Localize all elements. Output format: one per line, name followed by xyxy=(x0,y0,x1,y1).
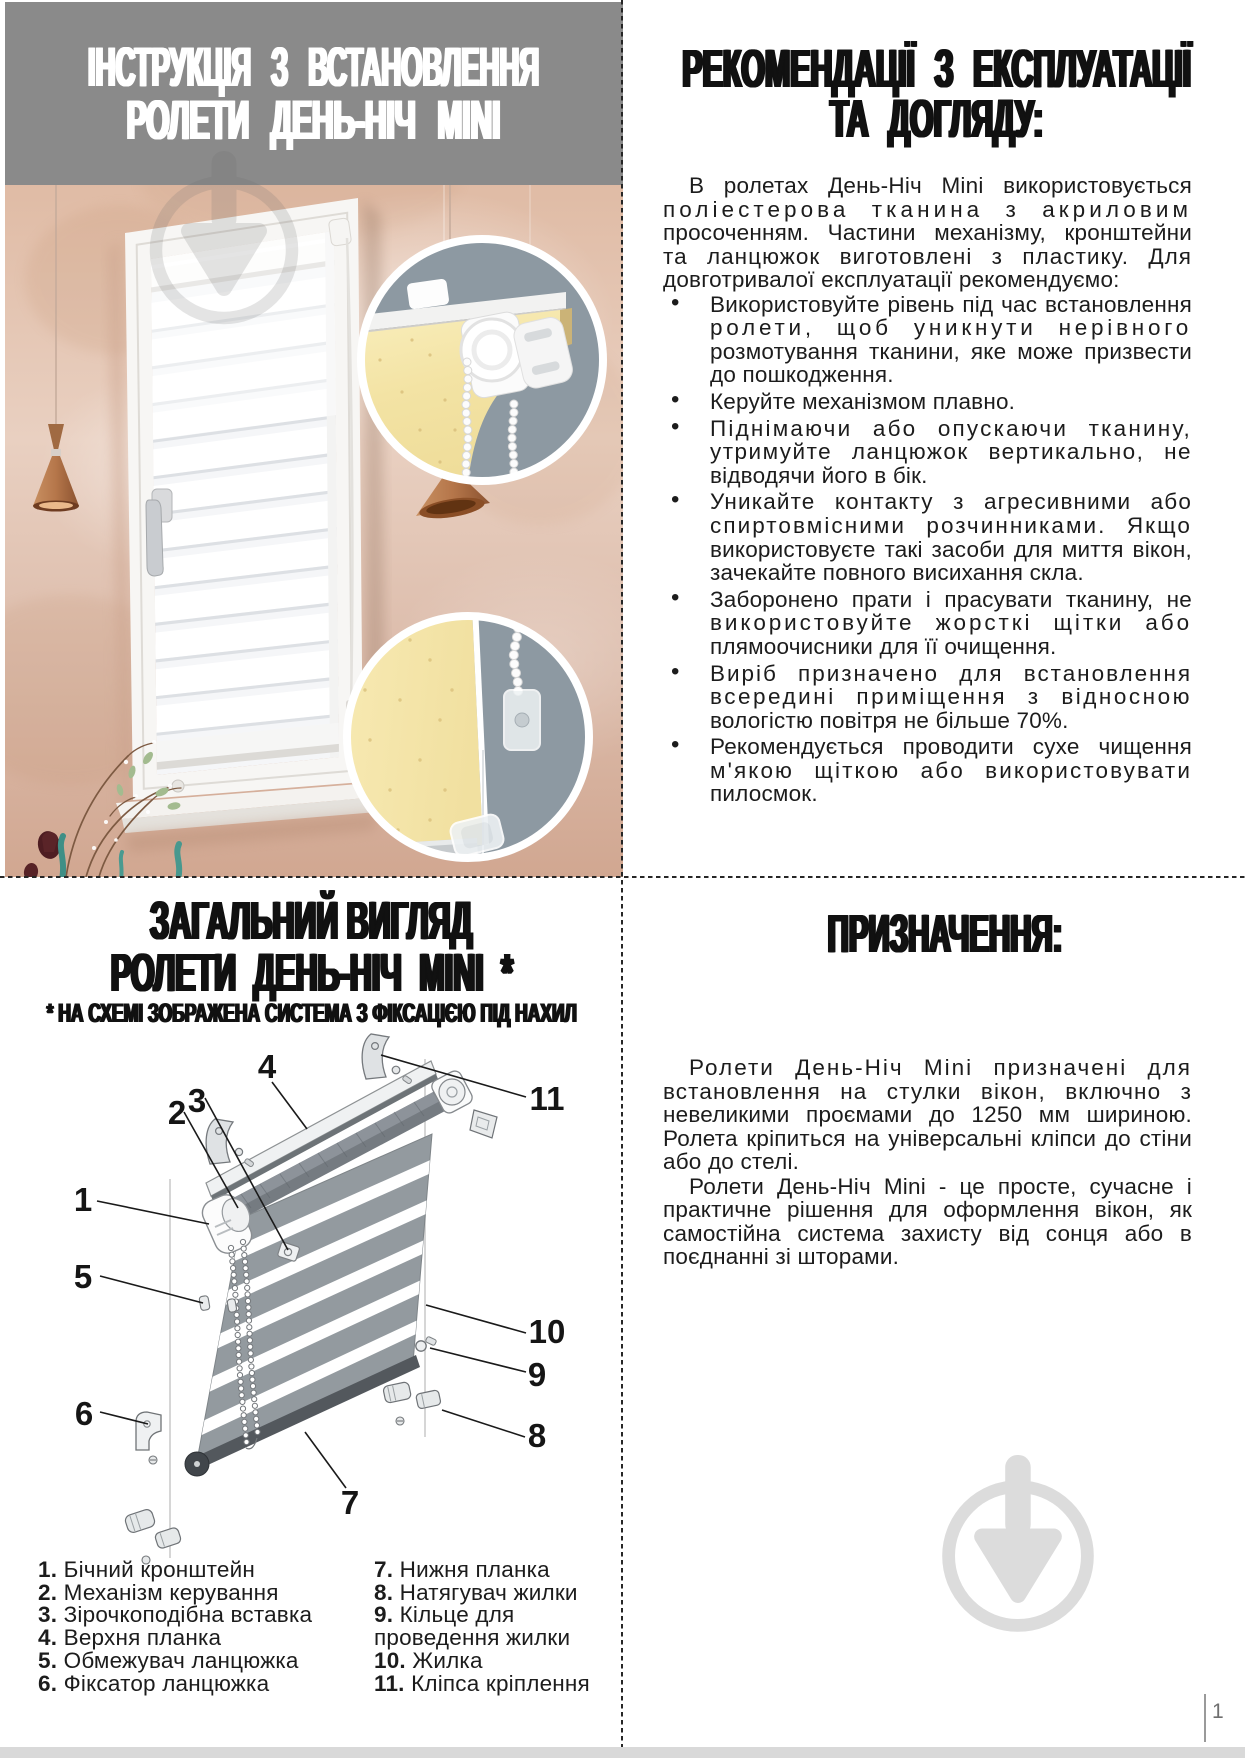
svg-text:1: 1 xyxy=(74,1181,92,1218)
svg-text:2: 2 xyxy=(168,1094,186,1131)
svg-text:3: 3 xyxy=(188,1082,206,1119)
svg-text:8: 8 xyxy=(528,1417,546,1454)
svg-text:6: 6 xyxy=(75,1395,93,1432)
svg-text:5: 5 xyxy=(74,1258,92,1295)
svg-text:10: 10 xyxy=(529,1313,566,1350)
svg-text:9: 9 xyxy=(528,1356,546,1393)
svg-text:4: 4 xyxy=(258,1048,277,1085)
svg-text:7: 7 xyxy=(341,1484,359,1521)
svg-text:11: 11 xyxy=(530,1080,565,1117)
